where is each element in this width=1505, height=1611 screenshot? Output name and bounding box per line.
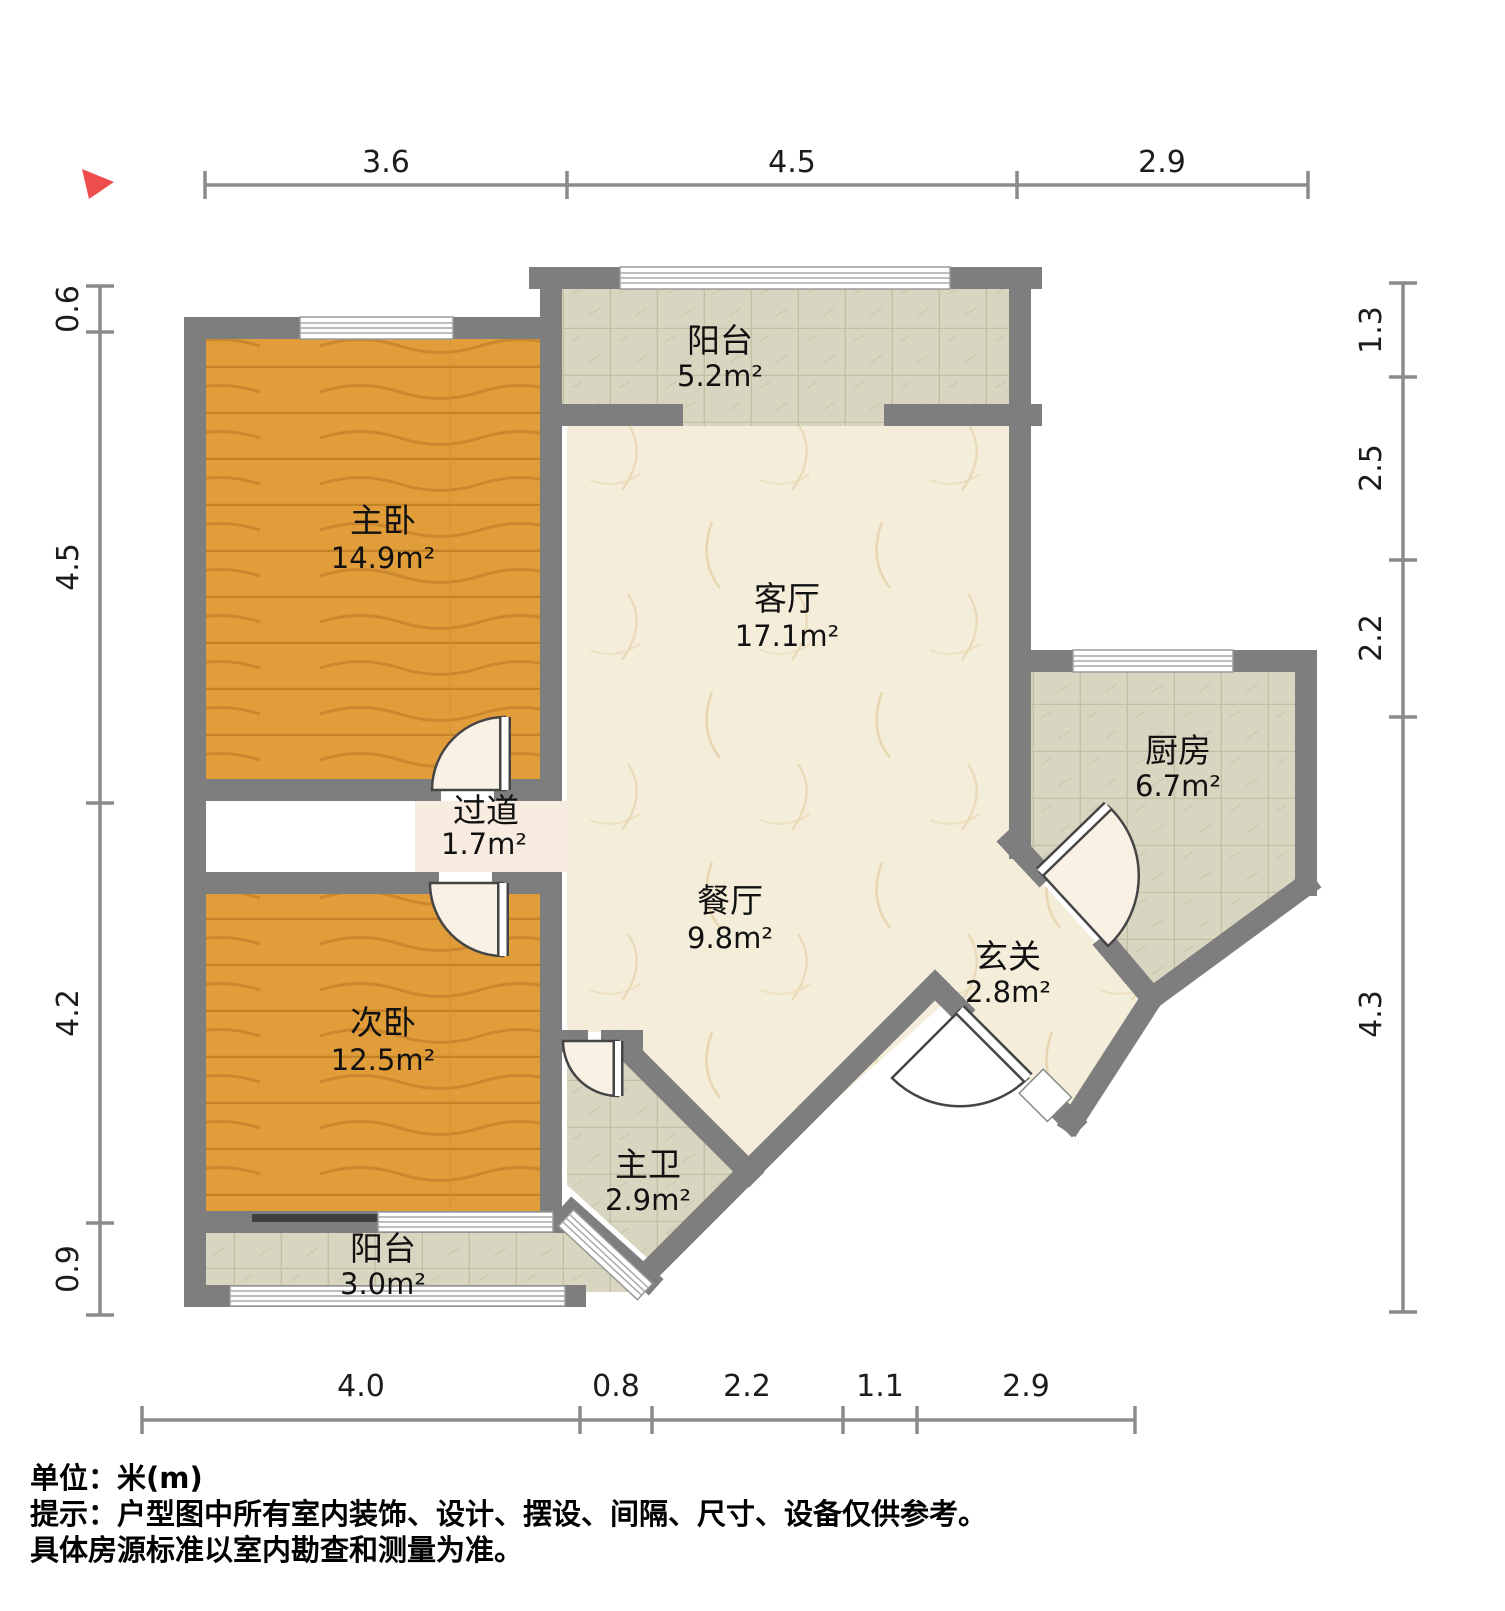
dim-right-4: 4.3 bbox=[1354, 990, 1389, 1038]
room-name-living-room: 客厅 bbox=[754, 579, 820, 618]
dim-top-1: 3.6 bbox=[362, 145, 410, 180]
room-area-living-room: 17.1m² bbox=[735, 619, 839, 653]
dim-top-2: 4.5 bbox=[768, 145, 816, 180]
room-name-master-bath: 主卫 bbox=[615, 1145, 681, 1184]
label-hallway: 过道 1.7m² bbox=[441, 791, 527, 861]
room-area-balcony-top: 5.2m² bbox=[677, 359, 763, 393]
label-kitchen: 厨房 6.7m² bbox=[1135, 731, 1221, 803]
dim-bottom-5: 2.9 bbox=[1002, 1369, 1050, 1404]
dim-left-2: 4.5 bbox=[51, 543, 86, 591]
room-name-balcony-bottom: 阳台 bbox=[350, 1229, 416, 1268]
room-name-balcony-top: 阳台 bbox=[687, 321, 753, 360]
dim-bottom-2: 0.8 bbox=[592, 1369, 640, 1404]
dim-bottom-1: 4.0 bbox=[337, 1369, 385, 1404]
dim-right-1: 1.3 bbox=[1354, 306, 1389, 354]
floorplan-drawing: 阳台 5.2m² 主卧 14.9m² 客厅 17.1m² 厨房 6.7m² 过道… bbox=[0, 0, 1505, 1611]
dim-right-2: 2.5 bbox=[1354, 444, 1389, 492]
dim-top-3: 2.9 bbox=[1138, 145, 1186, 180]
dim-left-4: 0.9 bbox=[51, 1245, 86, 1293]
dim-left-3: 4.2 bbox=[51, 989, 86, 1037]
room-name-kitchen: 厨房 bbox=[1145, 731, 1211, 770]
dim-left-1: 0.6 bbox=[51, 285, 86, 333]
window-master-bedroom bbox=[300, 317, 453, 339]
room-area-balcony-bottom: 3.0m² bbox=[340, 1267, 426, 1301]
room-area-dining-room: 9.8m² bbox=[687, 921, 773, 955]
note-disclaimer-1: 提示：户型图中所有室内装饰、设计、摆设、间隔、尺寸、设备仅供参考。 bbox=[30, 1497, 987, 1531]
label-balcony-top: 阳台 5.2m² bbox=[677, 321, 763, 393]
room-area-master-bath: 2.9m² bbox=[605, 1183, 691, 1217]
north-arrow-icon bbox=[82, 169, 114, 199]
notes: 单位：米(m) 提示：户型图中所有室内装饰、设计、摆设、间隔、尺寸、设备仅供参考… bbox=[30, 1461, 987, 1567]
floorplan-page: 阳台 5.2m² 主卧 14.9m² 客厅 17.1m² 厨房 6.7m² 过道… bbox=[0, 0, 1505, 1611]
room-area-master-bedroom: 14.9m² bbox=[331, 541, 435, 575]
label-dining-room: 餐厅 9.8m² bbox=[687, 881, 773, 955]
note-unit: 单位：米(m) bbox=[30, 1461, 203, 1495]
window-balcony-top bbox=[620, 267, 950, 289]
label-entrance: 玄关 2.8m² bbox=[965, 937, 1051, 1009]
room-name-master-bedroom: 主卧 bbox=[350, 501, 416, 540]
room-area-hallway: 1.7m² bbox=[441, 827, 527, 861]
label-master-bath: 主卫 2.9m² bbox=[605, 1145, 691, 1217]
room-name-dining-room: 餐厅 bbox=[697, 881, 763, 920]
note-disclaimer-2: 具体房源标准以室内勘查和测量为准。 bbox=[30, 1533, 523, 1567]
window-kitchen bbox=[1073, 650, 1233, 672]
room-name-entrance: 玄关 bbox=[975, 937, 1041, 976]
room-area-second-bedroom: 12.5m² bbox=[331, 1043, 435, 1077]
dim-bottom-3: 2.2 bbox=[723, 1369, 771, 1404]
room-area-kitchen: 6.7m² bbox=[1135, 769, 1221, 803]
room-area-entrance: 2.8m² bbox=[965, 975, 1051, 1009]
room-name-second-bedroom: 次卧 bbox=[350, 1003, 416, 1042]
dim-bottom-4: 1.1 bbox=[856, 1369, 904, 1404]
floor-balcony-threshold bbox=[672, 404, 895, 428]
room-name-hallway: 过道 bbox=[453, 791, 519, 830]
floor-balcony-top bbox=[562, 289, 1009, 404]
dim-right-3: 2.2 bbox=[1354, 614, 1389, 662]
label-balcony-bottom: 阳台 3.0m² bbox=[340, 1229, 426, 1301]
